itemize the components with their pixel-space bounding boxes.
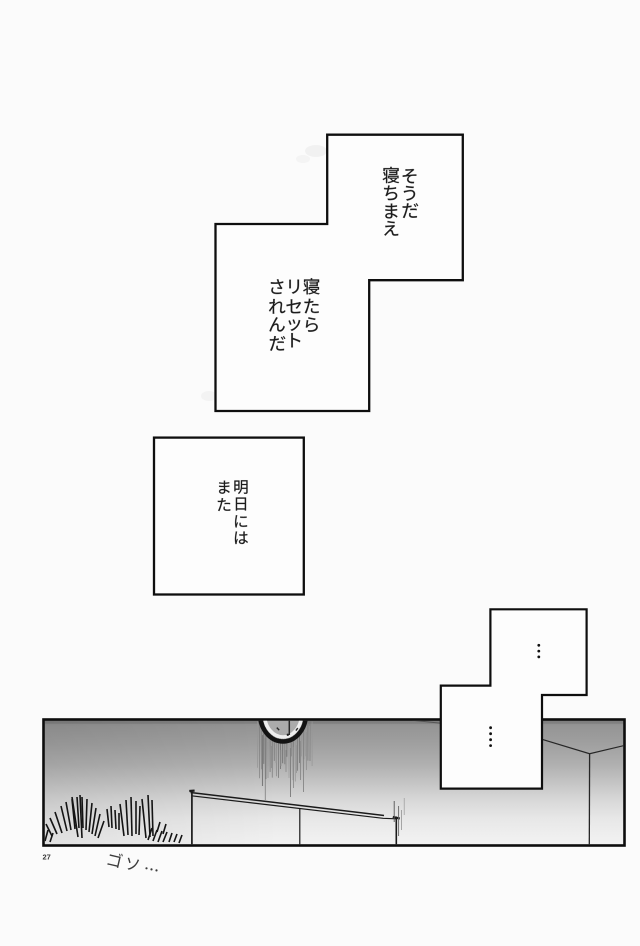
svg-text:27: 27: [43, 853, 51, 862]
